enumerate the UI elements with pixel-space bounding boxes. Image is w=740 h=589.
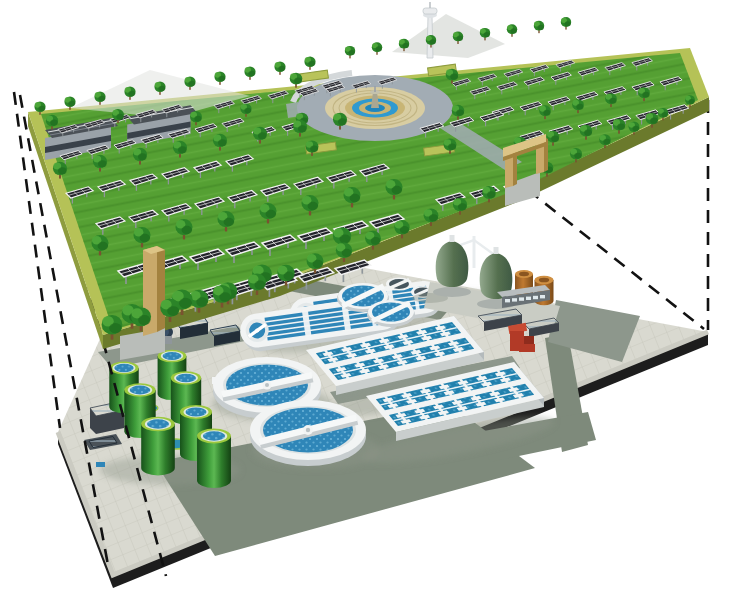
exploded-view-diagram xyxy=(0,0,740,589)
clarifier xyxy=(250,400,366,466)
tree xyxy=(372,42,382,54)
tree xyxy=(345,46,355,58)
round-tank-blue xyxy=(367,300,415,327)
sludge-tank xyxy=(141,417,175,476)
tree xyxy=(244,66,255,79)
tree xyxy=(507,24,517,36)
tree xyxy=(214,71,225,84)
round-tank-dark xyxy=(386,277,412,290)
tree xyxy=(561,17,571,29)
tree xyxy=(304,56,315,69)
tree xyxy=(274,61,285,74)
sludge-tank xyxy=(197,429,231,488)
tree xyxy=(534,21,544,33)
clarifier-platform xyxy=(212,377,221,384)
tree xyxy=(290,73,303,88)
illustration-canvas xyxy=(0,0,740,589)
